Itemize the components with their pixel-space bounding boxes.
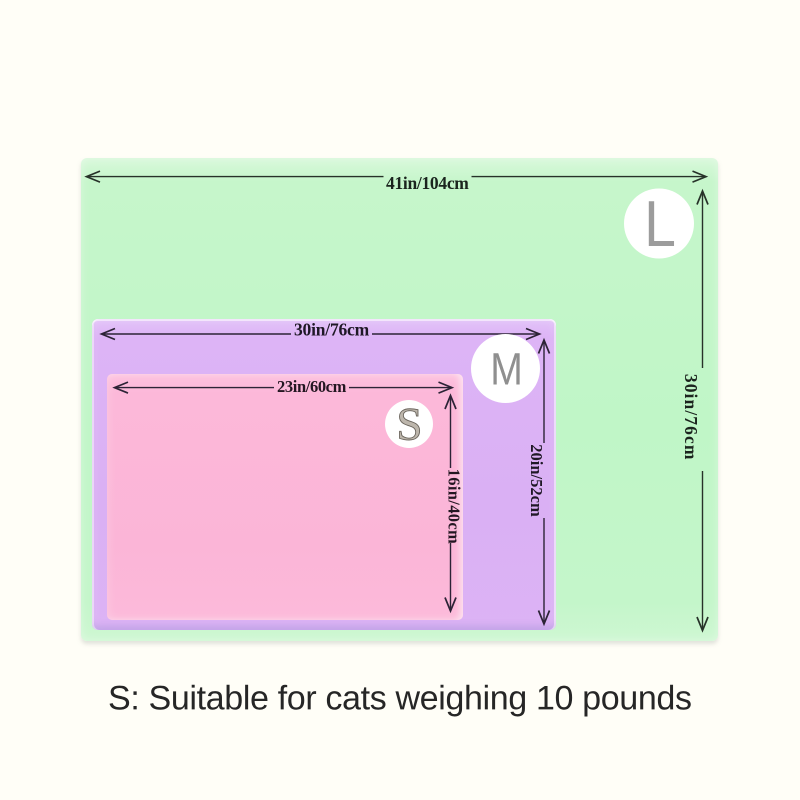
svg-text:L: L [644, 188, 676, 260]
svg-text:S: S [396, 399, 422, 451]
svg-text:M: M [490, 344, 523, 394]
svg-text:30in/76cm: 30in/76cm [681, 374, 701, 461]
svg-text:20in/52cm: 20in/52cm [527, 444, 546, 517]
svg-text:41in/104cm: 41in/104cm [386, 173, 469, 193]
svg-text:16in/40cm: 16in/40cm [445, 469, 464, 544]
svg-text:23in/60cm: 23in/60cm [277, 377, 347, 396]
svg-text:30in/76cm: 30in/76cm [294, 320, 370, 340]
